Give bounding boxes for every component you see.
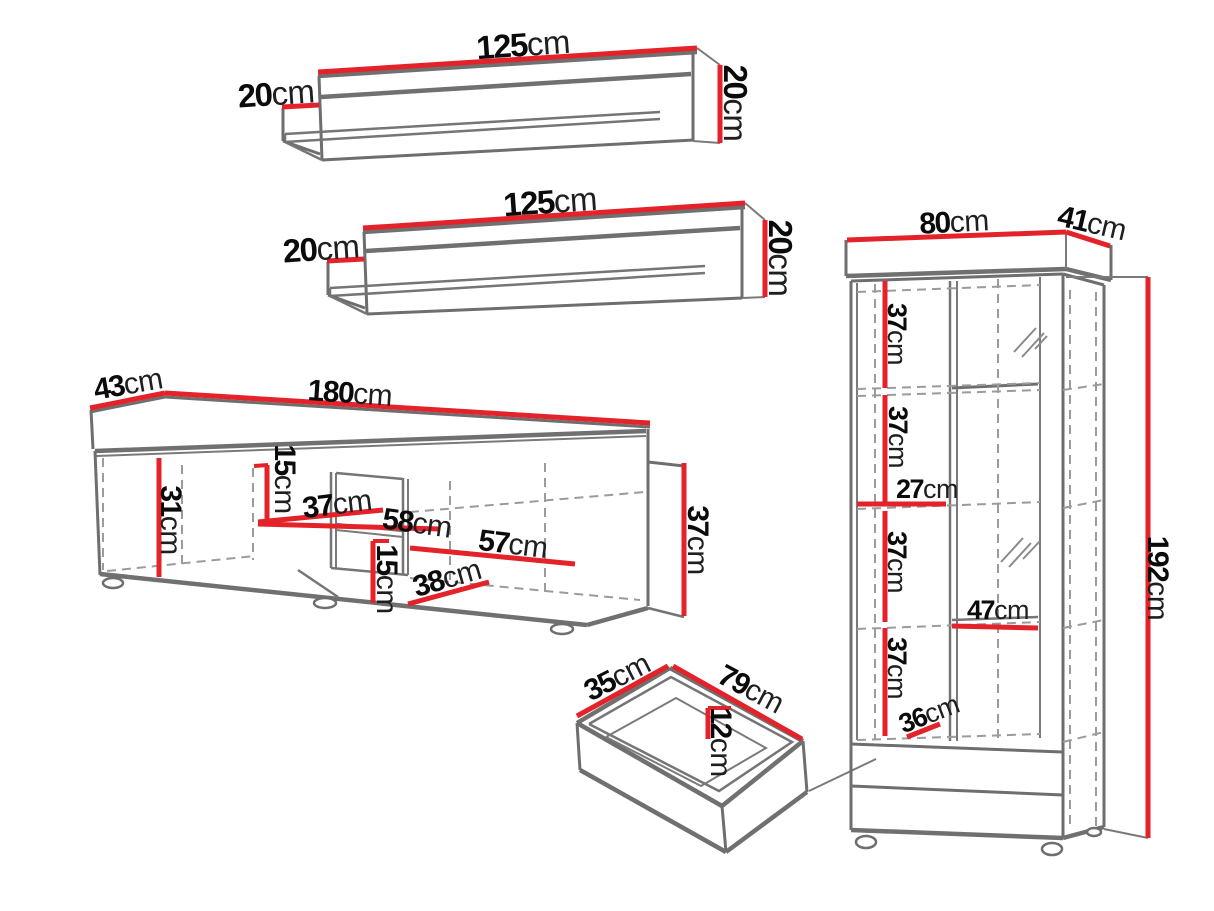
cabinet-foot	[856, 836, 876, 848]
tv-lower-niche-label: 15cm	[371, 544, 404, 613]
wall-shelf-top: 125cm 20cm 20cm	[236, 22, 754, 160]
wall-shelf-top-outline	[283, 48, 720, 160]
tv-niche-depth-label: 37cm	[301, 483, 374, 524]
tv-width-label: 180cm	[307, 374, 394, 413]
drawer: 35cm 79cm 12cm	[577, 647, 807, 852]
tv-height-label: 37cm	[682, 505, 715, 574]
cabinet-width-label: 80cm	[918, 204, 989, 241]
dim-line-right-width	[952, 626, 1038, 628]
cabinet-gap3-label: 37cm	[882, 531, 912, 593]
diagram-canvas: 125cm 20cm 20cm 125cm 20cm 20cm	[0, 0, 1214, 911]
shelf-middle-depth-label: 20cm	[281, 227, 360, 269]
shelf-middle-height-label: 20cm	[763, 220, 800, 297]
shelf-middle-width-label: 125cm	[502, 179, 598, 222]
cabinet-gap2-label: 37cm	[883, 406, 913, 468]
tv-stand-foot	[314, 598, 336, 608]
shelf-top-width-label: 125cm	[475, 22, 571, 65]
tv-upper-niche-label: 15cm	[269, 444, 302, 513]
tv-stand: 43cm 180cm 31cm 15cm 37cm 58cm 57cm 15cm…	[90, 362, 715, 634]
tv-stand-foot	[103, 578, 123, 588]
furniture-dimension-diagram: 125cm 20cm 20cm 125cm 20cm 20cm	[0, 0, 1214, 911]
cabinet-gap4-label: 37cm	[882, 637, 912, 699]
wall-shelf-middle: 125cm 20cm 20cm	[281, 179, 799, 314]
tv-niche-width-label: 58cm	[380, 502, 453, 544]
shelf-top-height-label: 20cm	[718, 65, 755, 142]
display-cabinet: 80cm 41cm 37cm 37cm 27cm 37cm 47cm 37cm …	[846, 199, 1175, 855]
dim-line-width	[165, 393, 650, 423]
cabinet-left-width-label: 27cm	[896, 474, 958, 504]
drawer-height-label: 12cm	[705, 707, 738, 776]
tv-right-shelf-label: 57cm	[477, 523, 550, 564]
tv-stand-foot	[551, 624, 573, 634]
cabinet-height-label: 192cm	[1142, 536, 1175, 621]
tv-left-height-label: 31cm	[155, 485, 188, 554]
cabinet-foot	[1087, 828, 1101, 836]
cabinet-foot	[1042, 843, 1062, 855]
cabinet-right-width-label: 47cm	[967, 595, 1029, 625]
cabinet-gap1-label: 37cm	[882, 303, 912, 365]
shelf-top-depth-label: 20cm	[236, 72, 315, 114]
